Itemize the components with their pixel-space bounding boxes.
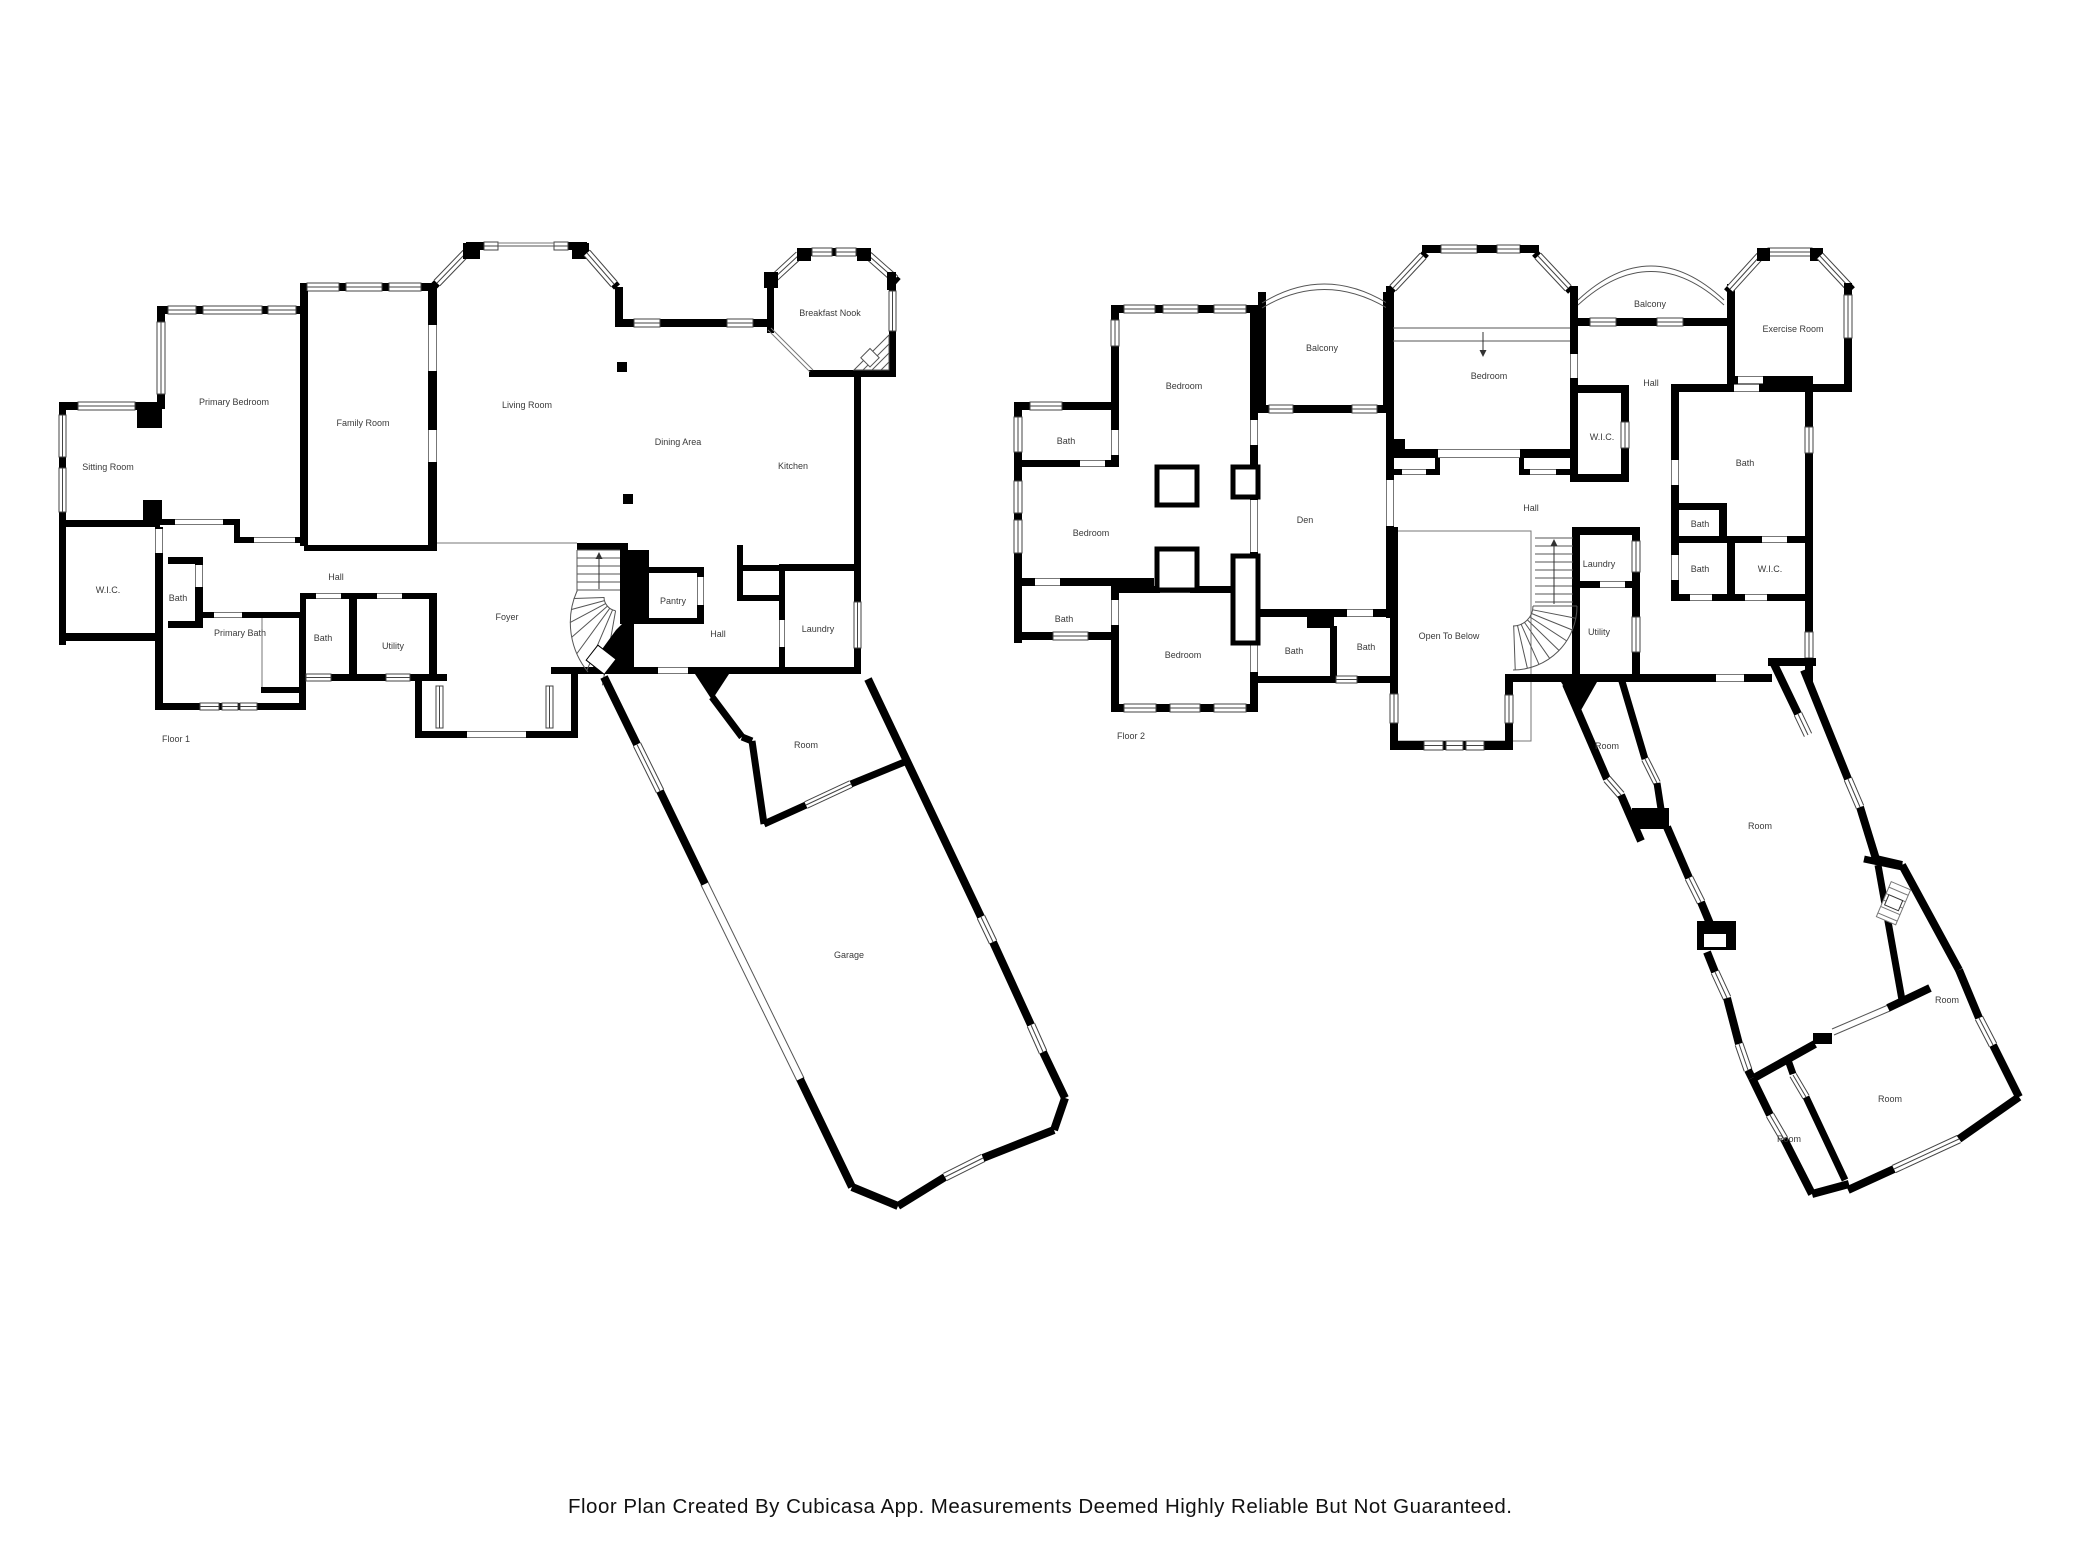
svg-text:Balcony: Balcony (1306, 343, 1339, 353)
svg-text:Open To Below: Open To Below (1419, 631, 1480, 641)
svg-text:Bath: Bath (1691, 564, 1710, 574)
svg-text:Bath: Bath (314, 633, 333, 643)
svg-text:Kitchen: Kitchen (778, 461, 808, 471)
svg-text:Bath: Bath (1736, 458, 1755, 468)
svg-text:Floor 2: Floor 2 (1117, 731, 1145, 741)
svg-text:Floor 1: Floor 1 (162, 734, 190, 744)
svg-text:Dining Area: Dining Area (655, 437, 702, 447)
svg-text:Room: Room (1748, 821, 1772, 831)
svg-text:Room: Room (1777, 1134, 1801, 1144)
svg-text:Sitting Room: Sitting Room (82, 462, 134, 472)
svg-text:Living Room: Living Room (502, 400, 552, 410)
svg-text:Room: Room (794, 740, 818, 750)
svg-text:W.I.C.: W.I.C. (96, 585, 121, 595)
svg-text:Floor Plan Created By Cubicasa: Floor Plan Created By Cubicasa App. Meas… (568, 1495, 1512, 1518)
svg-text:Bedroom: Bedroom (1073, 528, 1110, 538)
svg-text:Garage: Garage (834, 950, 864, 960)
svg-text:Room: Room (1595, 741, 1619, 751)
svg-text:Exercise Room: Exercise Room (1762, 324, 1823, 334)
svg-text:Primary Bedroom: Primary Bedroom (199, 397, 269, 407)
svg-text:Bath: Bath (1055, 614, 1074, 624)
svg-text:Hall: Hall (710, 629, 726, 639)
svg-text:Bath: Bath (169, 593, 188, 603)
svg-text:Bedroom: Bedroom (1165, 650, 1202, 660)
svg-text:Den: Den (1297, 515, 1314, 525)
svg-text:Laundry: Laundry (802, 624, 835, 634)
svg-text:W.I.C.: W.I.C. (1590, 432, 1615, 442)
svg-text:Room: Room (1935, 995, 1959, 1005)
svg-text:Family Room: Family Room (336, 418, 389, 428)
svg-text:Breakfast Nook: Breakfast Nook (799, 308, 861, 318)
svg-text:Bath: Bath (1285, 646, 1304, 656)
svg-text:Bath: Bath (1357, 642, 1376, 652)
svg-text:Bedroom: Bedroom (1166, 381, 1203, 391)
svg-text:Bedroom: Bedroom (1471, 371, 1508, 381)
svg-text:W.I.C.: W.I.C. (1758, 564, 1783, 574)
svg-text:Bath: Bath (1691, 519, 1710, 529)
svg-text:Primary Bath: Primary Bath (214, 628, 266, 638)
svg-text:Hall: Hall (328, 572, 344, 582)
svg-text:Foyer: Foyer (495, 612, 518, 622)
svg-text:Utility: Utility (1588, 627, 1610, 637)
svg-text:Room: Room (1878, 1094, 1902, 1104)
svg-text:Hall: Hall (1643, 378, 1659, 388)
svg-text:Bath: Bath (1057, 436, 1076, 446)
svg-text:Laundry: Laundry (1583, 559, 1616, 569)
svg-text:Balcony: Balcony (1634, 299, 1667, 309)
svg-text:Utility: Utility (382, 641, 404, 651)
svg-text:Hall: Hall (1523, 503, 1539, 513)
svg-text:Pantry: Pantry (660, 596, 687, 606)
